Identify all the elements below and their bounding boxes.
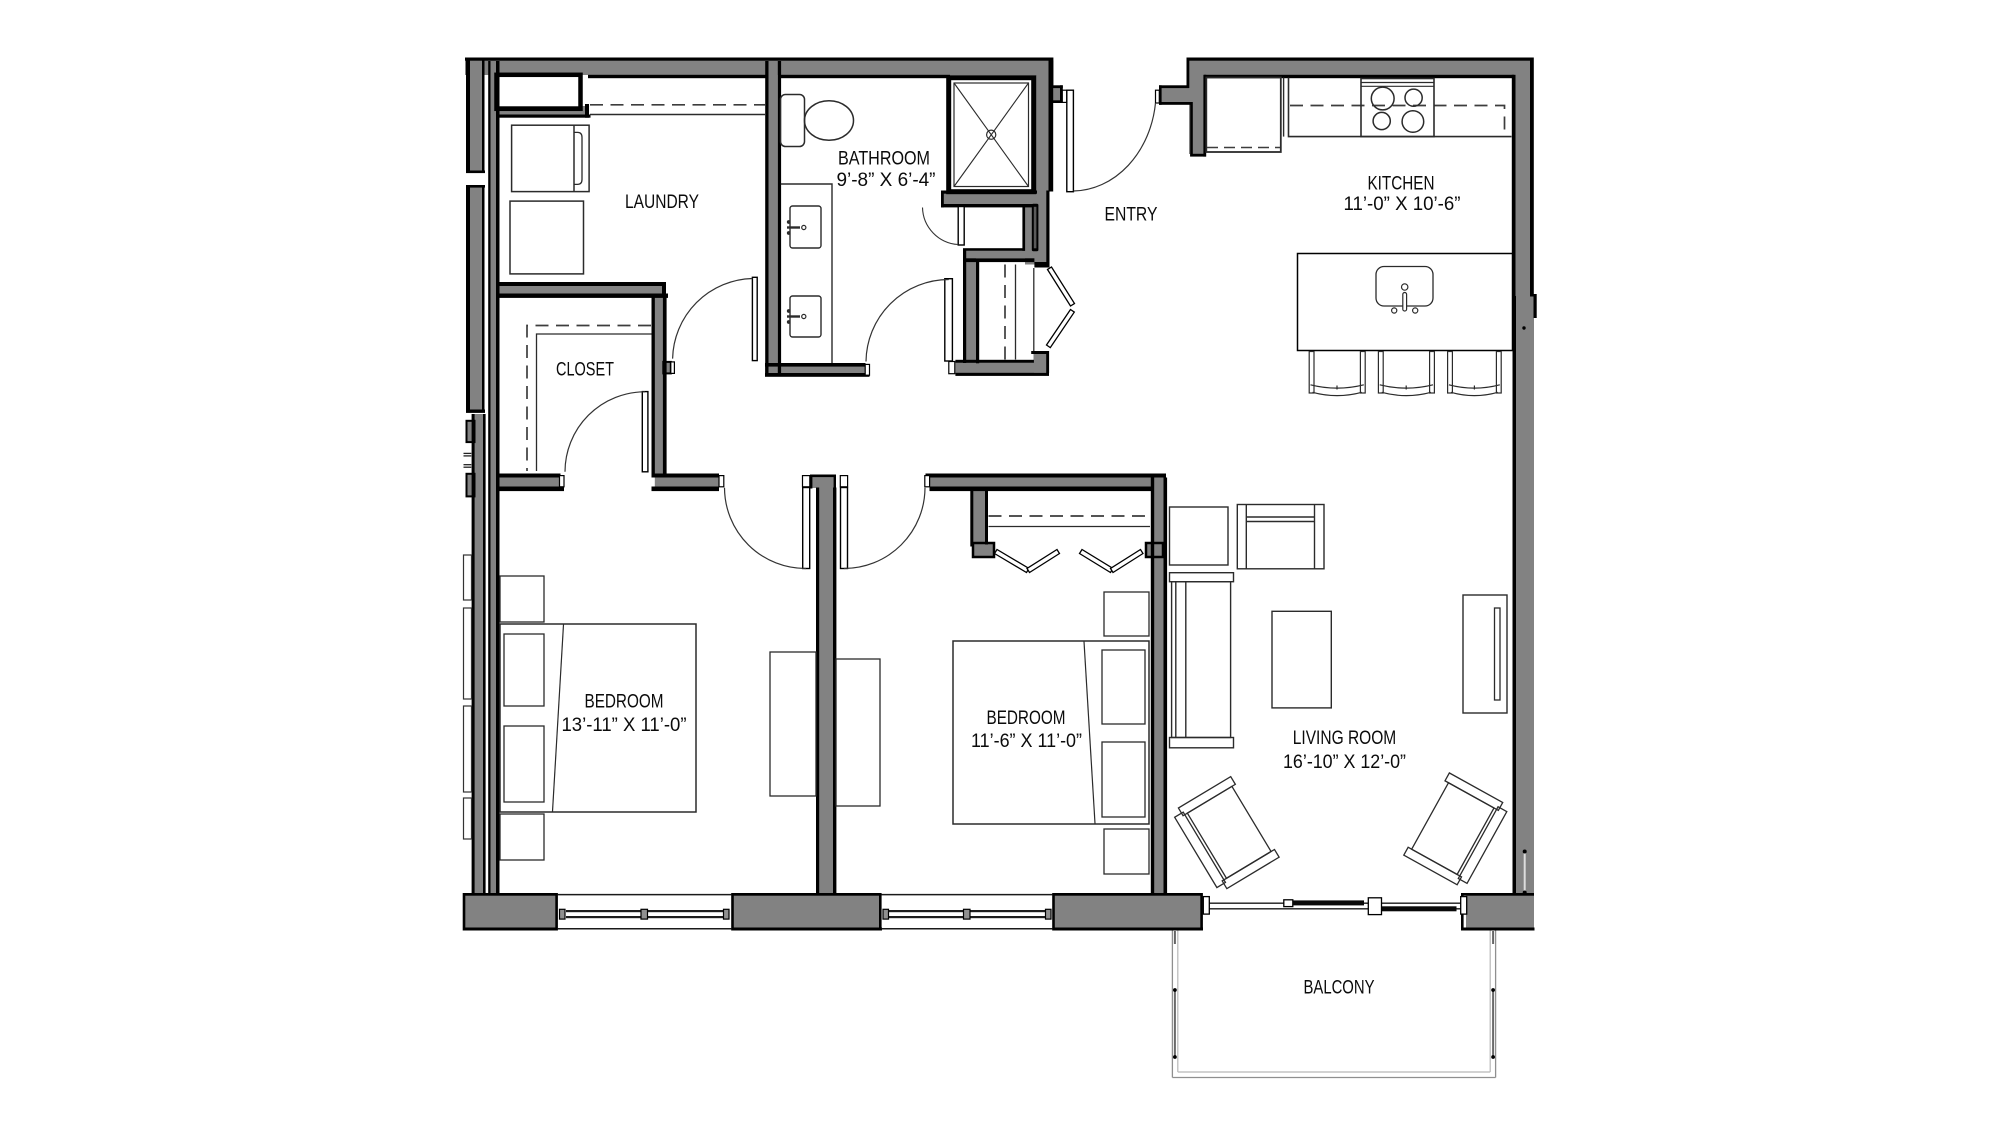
svg-text:BATHROOM: BATHROOM	[838, 148, 930, 170]
svg-text:11’-6” X 11’-0”: 11’-6” X 11’-0”	[971, 730, 1082, 752]
svg-text:9’-8” X 6’-4”: 9’-8” X 6’-4”	[837, 169, 936, 191]
svg-text:KITCHEN: KITCHEN	[1368, 173, 1435, 195]
svg-text:16’-10” X 12’-0”: 16’-10” X 12’-0”	[1283, 751, 1406, 773]
svg-text:LIVING ROOM: LIVING ROOM	[1293, 727, 1397, 749]
svg-text:CLOSET: CLOSET	[556, 359, 614, 381]
svg-text:BEDROOM: BEDROOM	[987, 707, 1066, 729]
svg-text:BEDROOM: BEDROOM	[585, 691, 664, 713]
svg-text:11’-0” X 10’-6”: 11’-0” X 10’-6”	[1344, 193, 1461, 215]
svg-text:LAUNDRY: LAUNDRY	[625, 191, 699, 213]
svg-text:ENTRY: ENTRY	[1105, 204, 1158, 226]
svg-text:BALCONY: BALCONY	[1304, 977, 1375, 999]
svg-text:13’-11” X 11’-0”: 13’-11” X 11’-0”	[562, 714, 687, 736]
